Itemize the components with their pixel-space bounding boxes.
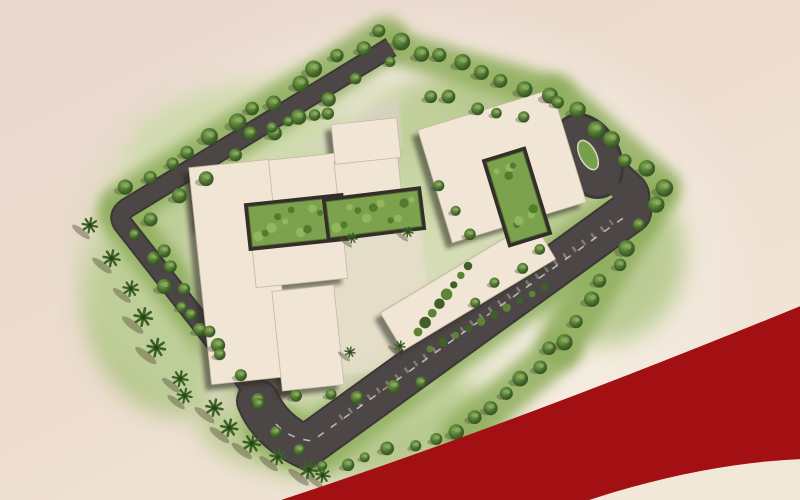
tree	[442, 90, 456, 104]
bush	[267, 223, 277, 233]
tree	[351, 391, 364, 404]
tree	[290, 390, 302, 402]
tree	[283, 116, 293, 126]
tree	[569, 315, 582, 328]
tree	[350, 73, 362, 85]
tree-highlight	[557, 99, 561, 103]
tree	[166, 157, 178, 169]
tree	[380, 441, 394, 455]
bush	[387, 217, 393, 223]
palm-crown	[399, 345, 402, 348]
tree-highlight	[258, 400, 262, 404]
tree	[618, 154, 631, 167]
tree-highlight	[190, 311, 194, 315]
tree-highlight	[524, 84, 530, 90]
tree	[584, 292, 599, 307]
tree-highlight	[328, 95, 333, 100]
tree-highlight	[386, 444, 391, 449]
bush	[282, 218, 288, 224]
bush	[369, 203, 378, 212]
tree	[342, 459, 354, 471]
tree-highlight	[430, 93, 434, 97]
tree-highlight	[455, 427, 460, 432]
tree	[433, 180, 444, 191]
palm-crown	[227, 425, 232, 430]
palm-crown	[109, 256, 114, 261]
tree-highlight	[150, 173, 155, 178]
tree-highlight	[219, 351, 223, 355]
bush	[340, 221, 347, 228]
tree-highlight	[271, 124, 275, 128]
tree	[294, 444, 305, 455]
tree-highlight	[595, 125, 601, 131]
tree	[178, 283, 190, 295]
palm-crown	[88, 223, 92, 227]
tree	[305, 61, 322, 78]
bush	[376, 199, 384, 207]
tree	[392, 33, 410, 51]
bush	[331, 223, 341, 233]
hedge	[516, 297, 523, 304]
bush	[303, 225, 312, 234]
tree-highlight	[591, 295, 596, 300]
tree	[176, 302, 187, 313]
tree-highlight	[273, 99, 278, 104]
tree	[292, 76, 308, 92]
tree-highlight	[477, 105, 482, 110]
tree	[533, 360, 547, 374]
tree-highlight	[475, 300, 479, 304]
hedge	[465, 325, 472, 332]
hedge	[452, 332, 459, 339]
tree-highlight	[390, 59, 394, 63]
tree	[512, 371, 528, 387]
hedge	[490, 311, 498, 319]
tree-highlight	[179, 191, 184, 196]
tree-highlight	[393, 382, 398, 387]
tree	[470, 298, 480, 308]
tree	[322, 107, 334, 119]
tree-highlight	[438, 182, 442, 186]
tree-highlight	[363, 44, 368, 49]
tree	[204, 326, 216, 338]
tree	[569, 101, 585, 117]
tree-highlight	[314, 111, 318, 115]
tree-highlight	[181, 304, 185, 308]
tree	[325, 389, 336, 400]
tree-highlight	[490, 404, 495, 409]
tree	[201, 128, 218, 145]
tree	[639, 160, 655, 176]
bush	[408, 197, 414, 203]
bush	[399, 198, 408, 207]
tree-highlight	[646, 163, 652, 169]
tree	[648, 196, 665, 213]
bush	[394, 215, 402, 223]
tree-highlight	[237, 117, 243, 123]
tree	[245, 102, 259, 116]
tree	[474, 65, 489, 80]
bush	[288, 207, 295, 214]
hedge	[529, 291, 536, 298]
tree-highlight	[322, 463, 326, 467]
tree	[517, 263, 528, 274]
tree	[387, 380, 400, 393]
tree	[587, 121, 605, 139]
hedge	[450, 281, 457, 288]
tree-highlight	[134, 231, 138, 235]
palm-crown	[249, 441, 254, 446]
tree	[157, 279, 172, 294]
palm-crown	[212, 405, 217, 410]
palm-crown	[129, 286, 133, 290]
tree-highlight	[275, 429, 279, 433]
tree	[266, 96, 281, 111]
tree-highlight	[184, 285, 188, 289]
tree-highlight	[638, 221, 642, 225]
hedge	[541, 283, 549, 291]
hedge	[414, 328, 423, 337]
hedge	[464, 262, 473, 271]
tree	[483, 401, 497, 415]
building-block	[331, 118, 401, 165]
palm-crown	[141, 314, 146, 319]
tree-highlight	[539, 246, 543, 250]
tree	[385, 56, 396, 67]
tree-highlight	[436, 435, 440, 439]
tree	[410, 440, 421, 451]
hedge	[419, 317, 431, 329]
tree	[454, 54, 470, 70]
tree-highlight	[199, 325, 204, 330]
tree	[321, 92, 335, 106]
hedge	[427, 346, 434, 353]
tree-highlight	[439, 51, 444, 56]
tree-highlight	[663, 183, 669, 189]
tree	[415, 377, 426, 388]
tree-highlight	[298, 112, 303, 117]
tree-highlight	[364, 454, 368, 458]
tree-highlight	[462, 57, 468, 63]
tree	[164, 260, 177, 273]
tree-highlight	[336, 51, 341, 56]
tree-highlight	[577, 105, 583, 111]
tree-highlight	[415, 442, 419, 446]
tree	[144, 171, 157, 184]
tree-highlight	[209, 131, 215, 137]
tree-highlight	[599, 277, 604, 282]
palm-crown	[183, 394, 187, 398]
hedge	[457, 272, 464, 279]
tree-highlight	[496, 110, 500, 114]
masterplan-render	[0, 0, 800, 500]
tree	[372, 24, 385, 37]
tree	[253, 398, 264, 409]
hedge	[477, 317, 486, 326]
tree-highlight	[575, 318, 580, 323]
palm-crown	[349, 351, 352, 354]
tree	[656, 179, 674, 197]
tree	[158, 244, 171, 257]
tree-highlight	[539, 363, 544, 368]
tree	[471, 102, 484, 115]
tree-highlight	[355, 75, 359, 79]
tree	[229, 148, 242, 161]
tree	[309, 109, 321, 121]
bush	[510, 163, 516, 169]
tree	[214, 349, 226, 361]
tree	[185, 309, 196, 320]
tree-highlight	[626, 243, 632, 249]
tree-highlight	[455, 208, 459, 212]
tree	[118, 180, 133, 195]
tree	[518, 111, 529, 122]
tree-highlight	[163, 247, 168, 252]
tree-highlight	[300, 79, 306, 85]
bush	[529, 204, 538, 213]
tree-highlight	[474, 413, 479, 418]
tree-highlight	[548, 344, 553, 349]
tree-highlight	[347, 461, 351, 465]
bush	[317, 210, 323, 216]
tree-highlight	[150, 215, 155, 220]
tree-highlight	[564, 337, 570, 343]
bush	[514, 216, 524, 226]
tree	[614, 259, 626, 271]
tree	[267, 122, 278, 133]
bush	[504, 171, 513, 180]
tree-highlight	[240, 372, 244, 376]
hedge	[441, 289, 453, 301]
tree-highlight	[288, 118, 292, 122]
tree-highlight	[611, 134, 617, 140]
tree-highlight	[400, 36, 406, 42]
bush	[308, 204, 316, 212]
tree-highlight	[378, 27, 383, 32]
tree	[244, 126, 257, 139]
hedge	[438, 338, 447, 347]
tree	[542, 341, 556, 355]
tree	[556, 334, 572, 350]
palm-crown	[306, 467, 311, 472]
tree	[500, 387, 513, 400]
tree-highlight	[299, 446, 303, 450]
tree	[129, 229, 140, 240]
tree	[489, 278, 499, 288]
tree	[360, 452, 370, 462]
tree	[516, 81, 532, 97]
tree-highlight	[235, 151, 240, 156]
tree	[199, 171, 214, 186]
tree	[414, 46, 429, 61]
hedge	[428, 309, 437, 318]
tree	[491, 108, 502, 119]
palm-crown	[321, 473, 325, 477]
tree-highlight	[549, 91, 555, 97]
tree	[534, 244, 545, 255]
tree-highlight	[327, 110, 331, 114]
bush	[493, 168, 499, 174]
palm-crown	[351, 237, 354, 240]
hedge	[502, 303, 510, 311]
tree	[430, 433, 442, 445]
tree-highlight	[519, 374, 524, 379]
tree	[432, 48, 446, 62]
palm-crown	[178, 376, 183, 381]
hedge	[434, 298, 445, 309]
bush	[354, 207, 361, 214]
tree	[464, 229, 476, 241]
tree-highlight	[523, 114, 527, 118]
tree-highlight	[186, 149, 191, 154]
tree	[330, 49, 344, 63]
tree	[144, 212, 158, 226]
tree	[493, 74, 507, 88]
tree-highlight	[357, 393, 362, 398]
tree	[424, 90, 437, 103]
bush	[362, 213, 372, 223]
tree-highlight	[250, 129, 255, 134]
tree-highlight	[469, 231, 473, 235]
site-plan-illustration	[0, 0, 800, 500]
tree-highlight	[620, 261, 624, 265]
tree-highlight	[205, 174, 210, 179]
tree-highlight	[170, 263, 174, 267]
tree	[172, 188, 187, 203]
tree	[229, 113, 247, 131]
tree	[270, 426, 281, 437]
tree	[235, 369, 247, 381]
tree-highlight	[209, 328, 213, 332]
tree-highlight	[295, 392, 299, 396]
tree	[552, 96, 564, 108]
tree-highlight	[125, 183, 130, 188]
tree	[603, 131, 620, 148]
tree-highlight	[506, 390, 511, 395]
tree-highlight	[251, 104, 256, 109]
tree-highlight	[624, 157, 629, 162]
tree-highlight	[421, 49, 426, 54]
tree-highlight	[330, 391, 334, 395]
tree-highlight	[481, 68, 486, 73]
tree	[357, 41, 372, 56]
tree	[468, 410, 482, 424]
tree-highlight	[421, 379, 425, 383]
tree-highlight	[164, 282, 169, 287]
tree	[633, 218, 645, 230]
tree-highlight	[313, 64, 319, 70]
tree-highlight	[522, 265, 526, 269]
palm-crown	[407, 231, 410, 234]
tree	[618, 240, 635, 257]
tree-highlight	[217, 341, 222, 346]
tree-highlight	[172, 160, 176, 164]
tree-highlight	[500, 77, 505, 82]
tree	[593, 274, 607, 288]
palm-crown	[276, 455, 281, 460]
tree-highlight	[655, 200, 661, 206]
tree	[451, 206, 461, 216]
bush	[346, 204, 352, 210]
tree	[180, 146, 194, 160]
tree-highlight	[448, 92, 453, 97]
tree-highlight	[494, 280, 498, 284]
building-block	[272, 285, 344, 391]
palm-crown	[154, 345, 159, 350]
bush	[274, 213, 281, 220]
